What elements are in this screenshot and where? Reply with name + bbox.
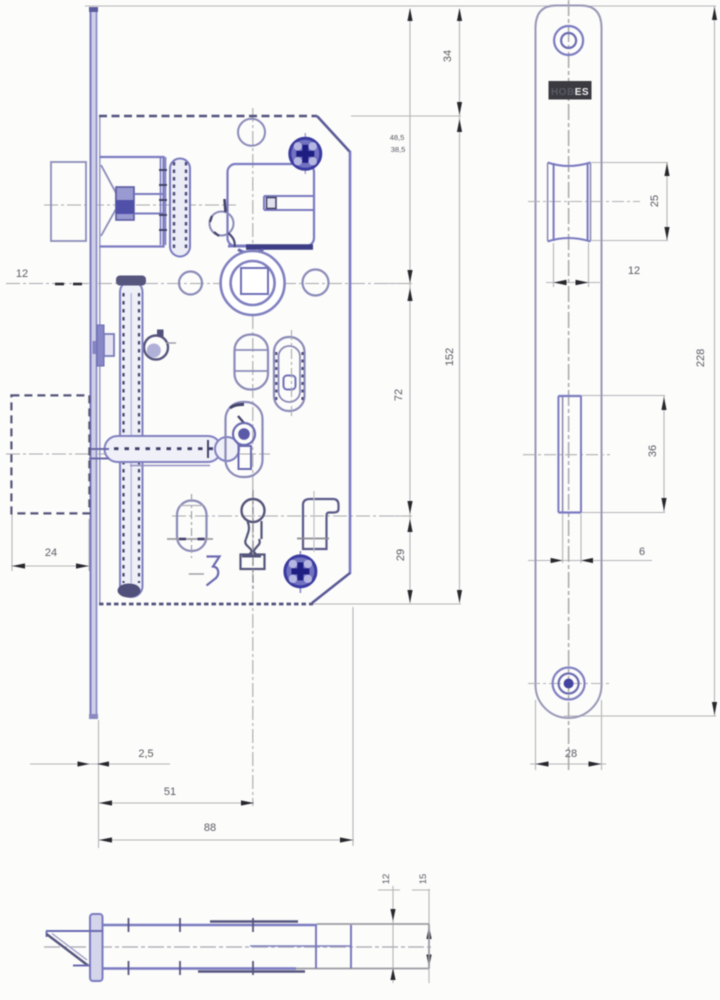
svg-text:228: 228 bbox=[695, 349, 707, 367]
svg-text:15: 15 bbox=[418, 874, 429, 885]
svg-text:48,5: 48,5 bbox=[390, 133, 405, 142]
svg-text:72: 72 bbox=[393, 389, 405, 401]
svg-text:38,5: 38,5 bbox=[391, 145, 406, 154]
svg-text:152: 152 bbox=[444, 348, 456, 366]
svg-text:12: 12 bbox=[381, 874, 392, 885]
svg-text:36: 36 bbox=[647, 445, 659, 457]
svg-text:2,5: 2,5 bbox=[138, 748, 153, 760]
svg-text:25: 25 bbox=[649, 195, 661, 207]
svg-text:24: 24 bbox=[45, 547, 57, 559]
svg-text:12: 12 bbox=[16, 268, 28, 280]
svg-text:HOBES: HOBES bbox=[551, 87, 589, 98]
svg-text:88: 88 bbox=[204, 822, 216, 834]
svg-text:12: 12 bbox=[628, 265, 640, 277]
svg-text:28: 28 bbox=[565, 748, 577, 760]
svg-text:51: 51 bbox=[164, 786, 176, 798]
svg-text:6: 6 bbox=[639, 546, 645, 558]
svg-text:34: 34 bbox=[442, 50, 454, 62]
svg-text:29: 29 bbox=[395, 549, 407, 561]
